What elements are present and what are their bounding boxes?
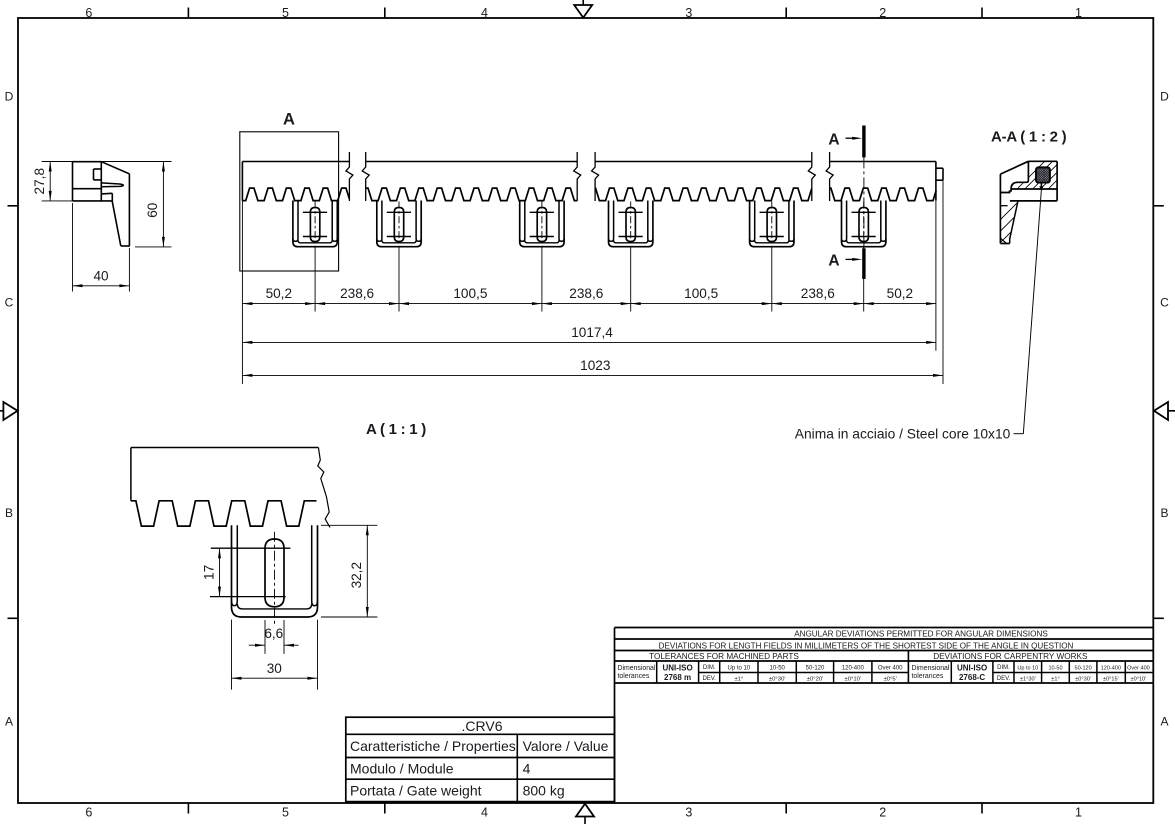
svg-text:DIM.: DIM. bbox=[703, 665, 716, 671]
svg-text:DEVIATIONS FOR CARPENTRY WORKS: DEVIATIONS FOR CARPENTRY WORKS bbox=[933, 652, 1088, 661]
svg-text:Modulo / Module: Modulo / Module bbox=[350, 760, 454, 776]
svg-text:±0°10': ±0°10' bbox=[1131, 676, 1147, 682]
svg-text:tolerances: tolerances bbox=[912, 673, 944, 680]
svg-text:1: 1 bbox=[1075, 805, 1082, 819]
svg-text:17: 17 bbox=[201, 565, 216, 580]
svg-text:238,6: 238,6 bbox=[569, 286, 603, 301]
svg-text:800 kg: 800 kg bbox=[523, 783, 565, 799]
svg-text:±1°: ±1° bbox=[734, 676, 743, 682]
svg-text:32,2: 32,2 bbox=[349, 562, 364, 588]
svg-text:A: A bbox=[828, 131, 839, 148]
svg-text:6: 6 bbox=[85, 6, 92, 20]
svg-text:2768 m: 2768 m bbox=[664, 673, 691, 682]
svg-text:238,6: 238,6 bbox=[801, 286, 835, 301]
svg-text:C: C bbox=[5, 295, 14, 309]
svg-text:4: 4 bbox=[481, 6, 488, 20]
svg-text:±0°10': ±0°10' bbox=[845, 676, 862, 682]
svg-text:238,6: 238,6 bbox=[340, 286, 374, 301]
svg-text:.CRV6: .CRV6 bbox=[462, 718, 503, 734]
svg-text:50,2: 50,2 bbox=[266, 286, 292, 301]
svg-text:tolerances: tolerances bbox=[618, 673, 650, 680]
svg-text:5: 5 bbox=[282, 6, 289, 20]
svg-text:A: A bbox=[1160, 714, 1168, 728]
svg-text:±1°: ±1° bbox=[1051, 676, 1059, 682]
svg-text:5: 5 bbox=[282, 805, 289, 819]
svg-text:±0°15': ±0°15' bbox=[1103, 676, 1119, 682]
svg-text:±0°30': ±0°30' bbox=[1075, 676, 1091, 682]
svg-text:DEVIATIONS FOR LENGTH FIELDS I: DEVIATIONS FOR LENGTH FIELDS IN MILLIMET… bbox=[659, 641, 1074, 650]
svg-text:±0°5': ±0°5' bbox=[884, 676, 897, 682]
svg-text:C: C bbox=[1160, 295, 1169, 309]
svg-text:50-120: 50-120 bbox=[806, 665, 825, 671]
svg-text:120-400: 120-400 bbox=[842, 665, 865, 671]
svg-text:30: 30 bbox=[267, 661, 283, 676]
svg-text:±0°20': ±0°20' bbox=[807, 676, 824, 682]
svg-text:4: 4 bbox=[481, 805, 488, 819]
svg-text:DIM.: DIM. bbox=[997, 665, 1010, 671]
svg-text:40: 40 bbox=[93, 268, 109, 283]
svg-text:B: B bbox=[1160, 506, 1168, 520]
svg-text:A: A bbox=[828, 253, 839, 270]
svg-text:Over 400: Over 400 bbox=[878, 665, 903, 671]
svg-text:6,6: 6,6 bbox=[264, 626, 283, 641]
svg-text:D: D bbox=[1160, 89, 1169, 103]
svg-text:UNI-ISO: UNI-ISO bbox=[957, 664, 987, 673]
svg-text:3: 3 bbox=[685, 805, 692, 819]
svg-text:DEV.: DEV. bbox=[702, 676, 716, 682]
svg-text:2768-C: 2768-C bbox=[959, 673, 985, 682]
svg-text:Dimensional: Dimensional bbox=[912, 665, 950, 672]
svg-text:27,8: 27,8 bbox=[32, 168, 47, 194]
svg-text:100,5: 100,5 bbox=[684, 286, 718, 301]
svg-text:1017,4: 1017,4 bbox=[571, 325, 613, 340]
svg-text:4: 4 bbox=[523, 760, 531, 776]
svg-text:±1°30': ±1°30' bbox=[1020, 676, 1036, 682]
svg-text:B: B bbox=[5, 506, 13, 520]
svg-text:Dimensional: Dimensional bbox=[618, 665, 656, 672]
svg-text:Portata / Gate weight: Portata / Gate weight bbox=[350, 783, 482, 799]
svg-text:2: 2 bbox=[879, 805, 886, 819]
svg-text:50,2: 50,2 bbox=[887, 286, 913, 301]
svg-text:1023: 1023 bbox=[580, 358, 610, 373]
svg-text:50-120: 50-120 bbox=[1075, 665, 1092, 671]
svg-text:10-50: 10-50 bbox=[1048, 665, 1062, 671]
svg-text:Up to 10: Up to 10 bbox=[728, 665, 751, 671]
svg-text:DEV.: DEV. bbox=[997, 676, 1011, 682]
svg-text:1: 1 bbox=[1075, 6, 1082, 20]
svg-text:3: 3 bbox=[685, 6, 692, 20]
svg-text:D: D bbox=[5, 89, 14, 103]
svg-text:±0°30': ±0°30' bbox=[769, 676, 786, 682]
svg-text:TOLERANCES FOR MACHINED PARTS: TOLERANCES FOR MACHINED PARTS bbox=[649, 652, 799, 661]
svg-text:A: A bbox=[5, 714, 13, 728]
svg-text:Over 400: Over 400 bbox=[1127, 665, 1150, 671]
svg-text:UNI-ISO: UNI-ISO bbox=[662, 664, 692, 673]
svg-text:ANGULAR DEVIATIONS PERMITTED F: ANGULAR DEVIATIONS PERMITTED FOR ANGULAR… bbox=[794, 630, 1048, 639]
svg-text:100,5: 100,5 bbox=[453, 286, 487, 301]
svg-text:6: 6 bbox=[85, 805, 92, 819]
svg-text:A: A bbox=[283, 111, 295, 129]
svg-text:2: 2 bbox=[879, 6, 886, 20]
svg-text:Anima in acciaio / Steel core: Anima in acciaio / Steel core 10x10 bbox=[795, 426, 1011, 441]
svg-text:Up to 10: Up to 10 bbox=[1017, 665, 1038, 671]
svg-text:60: 60 bbox=[145, 202, 160, 218]
svg-text:Valore / Value: Valore / Value bbox=[523, 738, 609, 754]
svg-text:120-400: 120-400 bbox=[1101, 665, 1121, 671]
svg-text:10-50: 10-50 bbox=[770, 665, 786, 671]
svg-text:A-A ( 1 : 2 ): A-A ( 1 : 2 ) bbox=[991, 128, 1067, 145]
svg-text:Caratteristiche / Properties: Caratteristiche / Properties bbox=[350, 738, 516, 754]
svg-text:A ( 1 : 1 ): A ( 1 : 1 ) bbox=[366, 421, 426, 438]
